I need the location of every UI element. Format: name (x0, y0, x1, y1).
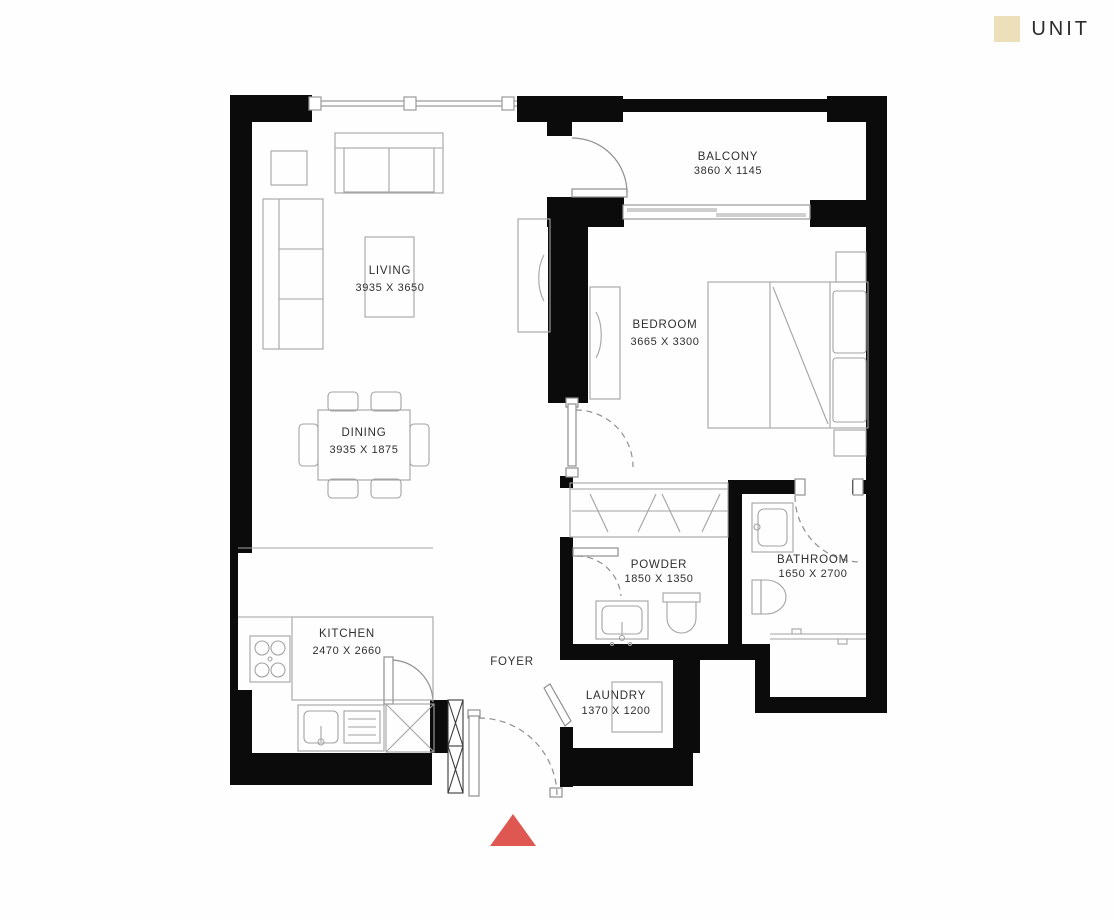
balcony-door-leaf (572, 189, 627, 197)
entry-column (448, 700, 463, 793)
room-label-bedroom: BEDROOM (632, 319, 697, 331)
room-label-kitchen: KITCHEN (319, 628, 375, 640)
powder-door-arc (577, 556, 621, 596)
room-dims-laundry: 1370 X 1200 (582, 705, 651, 717)
room-dims-kitchen: 2470 X 2660 (313, 645, 382, 657)
room-dims-living: 3935 X 3650 (356, 282, 425, 294)
room-label-balcony: BALCONY (698, 151, 759, 163)
bathroom-sink (752, 503, 793, 552)
shower-screen (770, 629, 866, 644)
room-dims-bathroom: 1650 X 2700 (779, 568, 848, 580)
room-label-laundry: LAUNDRY (586, 690, 646, 702)
bedroom-door-leaf (568, 404, 576, 466)
kitchen-counter (238, 548, 433, 700)
tv-console-living (518, 219, 550, 332)
side-table (271, 151, 307, 185)
room-label-bathroom: BATHROOM (777, 554, 849, 566)
room-dims-dining: 3935 X 1875 (330, 444, 399, 456)
stove (250, 636, 290, 682)
bathroom-toilet (752, 580, 786, 614)
powder-door-leaf (573, 548, 618, 556)
kitchen-door-leaf (384, 657, 393, 704)
bathroom-door-arc (795, 496, 861, 562)
bed-bench (834, 430, 866, 456)
room-dims-bedroom: 3665 X 3300 (631, 336, 700, 348)
room-label-dining: DINING (341, 427, 386, 439)
room-label-powder: POWDER (631, 559, 688, 571)
floor-plan-page: UNIT (0, 0, 1116, 921)
dresser-bedroom (590, 287, 620, 399)
kitchen-sink (298, 705, 384, 751)
room-dims-powder: 1850 X 1350 (625, 573, 694, 585)
entrance-arrow-icon (490, 814, 536, 846)
powder-toilet (663, 593, 700, 633)
room-label-living: LIVING (369, 265, 412, 277)
kitchen-door-arc (393, 660, 433, 702)
cabinet (263, 199, 323, 349)
sofa (335, 133, 443, 193)
coffee-table (365, 237, 414, 317)
bedside-table (836, 252, 866, 282)
room-label-foyer: FOYER (490, 656, 534, 668)
laundry-door-leaf (544, 684, 571, 726)
balcony-door-arc (572, 138, 627, 193)
floor-plan-drawing: LIVING 3935 X 3650 DINING 3935 X 1875 BE… (0, 0, 1116, 921)
walls (230, 95, 887, 787)
refrigerator (386, 704, 434, 752)
powder-sink (596, 601, 648, 646)
entrance-door-arc (479, 718, 557, 796)
entrance-door-leaf (469, 716, 479, 796)
bedroom-door-arc (576, 410, 633, 467)
closet (570, 483, 728, 537)
room-dims-balcony: 3860 X 1145 (694, 165, 762, 177)
bed (708, 282, 868, 428)
